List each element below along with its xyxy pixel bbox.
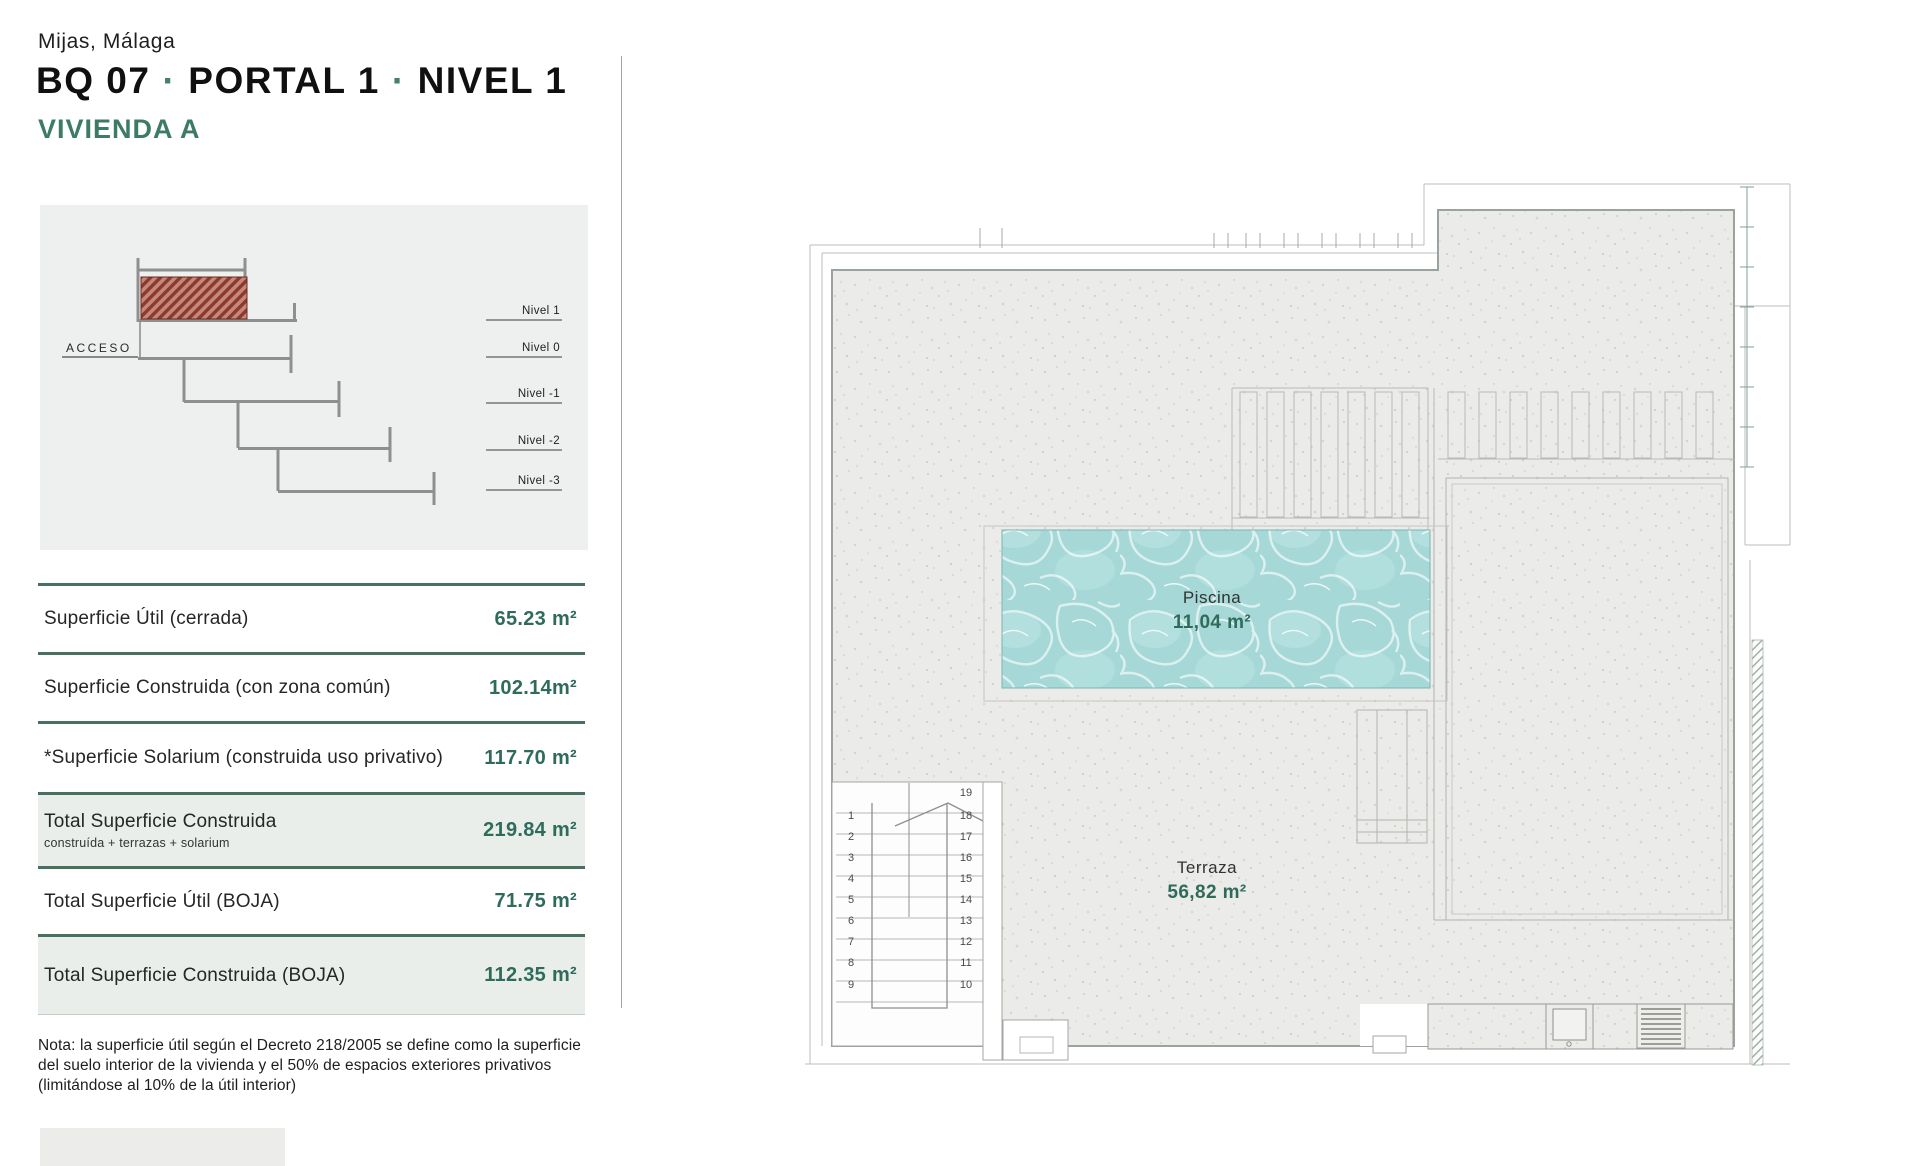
row-label: Total Superficie Construidaconstruída + … [44,811,276,850]
svg-text:1: 1 [848,810,854,822]
pool-area-value: 11,04 m² [1173,612,1251,633]
svg-text:19: 19 [960,787,972,799]
svg-text:14: 14 [960,894,972,906]
title-separator-icon: · [150,60,188,101]
terrace-label: Terraza [1177,858,1237,877]
svg-text:4: 4 [848,873,854,885]
level-labels: Nivel 1 Nivel 0 Nivel -1 Nivel -2 Nivel … [486,305,562,490]
svg-text:17: 17 [960,831,972,843]
svg-text:2: 2 [848,831,854,843]
terrace-area-value: 56,82 m² [1167,882,1246,903]
sink [1553,1009,1586,1040]
svg-text:9: 9 [848,979,854,991]
row-label: Total Superficie Construida (BOJA) [44,965,345,987]
pool-label: Piscina [1183,588,1241,607]
row-label: Superficie Construida (con zona común) [44,677,391,699]
row-sublabel: construída + terrazas + solarium [44,836,276,850]
row-value: 102.14m² [489,677,577,700]
legal-note: Nota: la superficie útil según el Decret… [38,1036,594,1095]
pool [1002,530,1430,688]
location-text: Mijas, Málaga [38,30,175,54]
building-section-diagram: ACCESO Nivel 1 Nivel 0 Nivel -1 Nivel -2… [40,205,588,550]
row-value: 65.23 m² [495,608,577,631]
table-row: Total Superficie Construidaconstruída + … [38,792,585,866]
svg-text:10: 10 [960,979,972,991]
row-label: Superficie Útil (cerrada) [44,608,249,630]
svg-text:18: 18 [960,810,972,822]
right-dimension-line [1740,187,1754,467]
row-value: 219.84 m² [483,819,577,842]
door-mat [1373,1036,1406,1053]
row-label: *Superficie Solarium (construida uso pri… [44,747,443,769]
row-value: 117.70 m² [484,747,577,770]
svg-text:3: 3 [848,852,854,864]
svg-text:11: 11 [960,957,971,969]
planter-box [1003,1020,1068,1060]
table-row: Total Superficie Útil (BOJA) 71.75 m² [38,866,585,934]
column-divider [621,56,622,1008]
boundary-wall-hatch [1752,640,1763,1065]
table-row: Total Superficie Construida (BOJA) 112.3… [38,934,585,1014]
areas-table: Superficie Útil (cerrada) 65.23 m² Super… [38,583,585,1015]
highlighted-level-area [141,277,247,319]
page-title: BQ 07·PORTAL 1·NIVEL 1 [36,60,567,102]
stair-numbers-left: 1 2 3 4 5 6 7 8 9 [848,810,854,991]
level-label: Nivel 0 [522,342,560,354]
floor-plan: Piscina 11,04 m² 1 [780,140,1820,1110]
title-portal: PORTAL 1 [188,60,380,101]
svg-text:12: 12 [960,936,972,948]
table-row: *Superficie Solarium (construida uso pri… [38,721,585,792]
title-level: NIVEL 1 [418,60,568,101]
brochure-page: Mijas, Málaga BQ 07·PORTAL 1·NIVEL 1 VIV… [0,0,1920,1166]
table-row: Superficie Construida (con zona común) 1… [38,652,585,721]
outdoor-counter [1428,1004,1733,1049]
row-label: Total Superficie Útil (BOJA) [44,891,280,913]
access-label: ACCESO [66,341,132,355]
level-label: Nivel -1 [518,388,560,400]
row-value: 112.35 m² [484,964,577,987]
svg-text:7: 7 [848,936,854,948]
grill [1637,1004,1685,1048]
table-row: Superficie Útil (cerrada) 65.23 m² [38,583,585,652]
level-label: Nivel -3 [518,475,560,487]
row-value: 71.75 m² [495,890,577,913]
title-separator-icon: · [380,60,418,101]
svg-text:13: 13 [960,915,972,927]
svg-text:16: 16 [960,852,972,864]
level-label: Nivel -2 [518,435,560,447]
bottom-placeholder-box [40,1128,285,1166]
svg-text:8: 8 [848,957,854,969]
title-block: BQ 07 [36,60,150,101]
svg-text:6: 6 [848,915,854,927]
svg-text:5: 5 [848,894,854,906]
stairs: 1 2 3 4 5 6 7 8 9 19 18 17 16 15 14 13 1… [832,782,1002,1060]
level-label: Nivel 1 [522,305,560,317]
unit-title: VIVIENDA A [38,114,201,145]
svg-text:15: 15 [960,873,972,885]
